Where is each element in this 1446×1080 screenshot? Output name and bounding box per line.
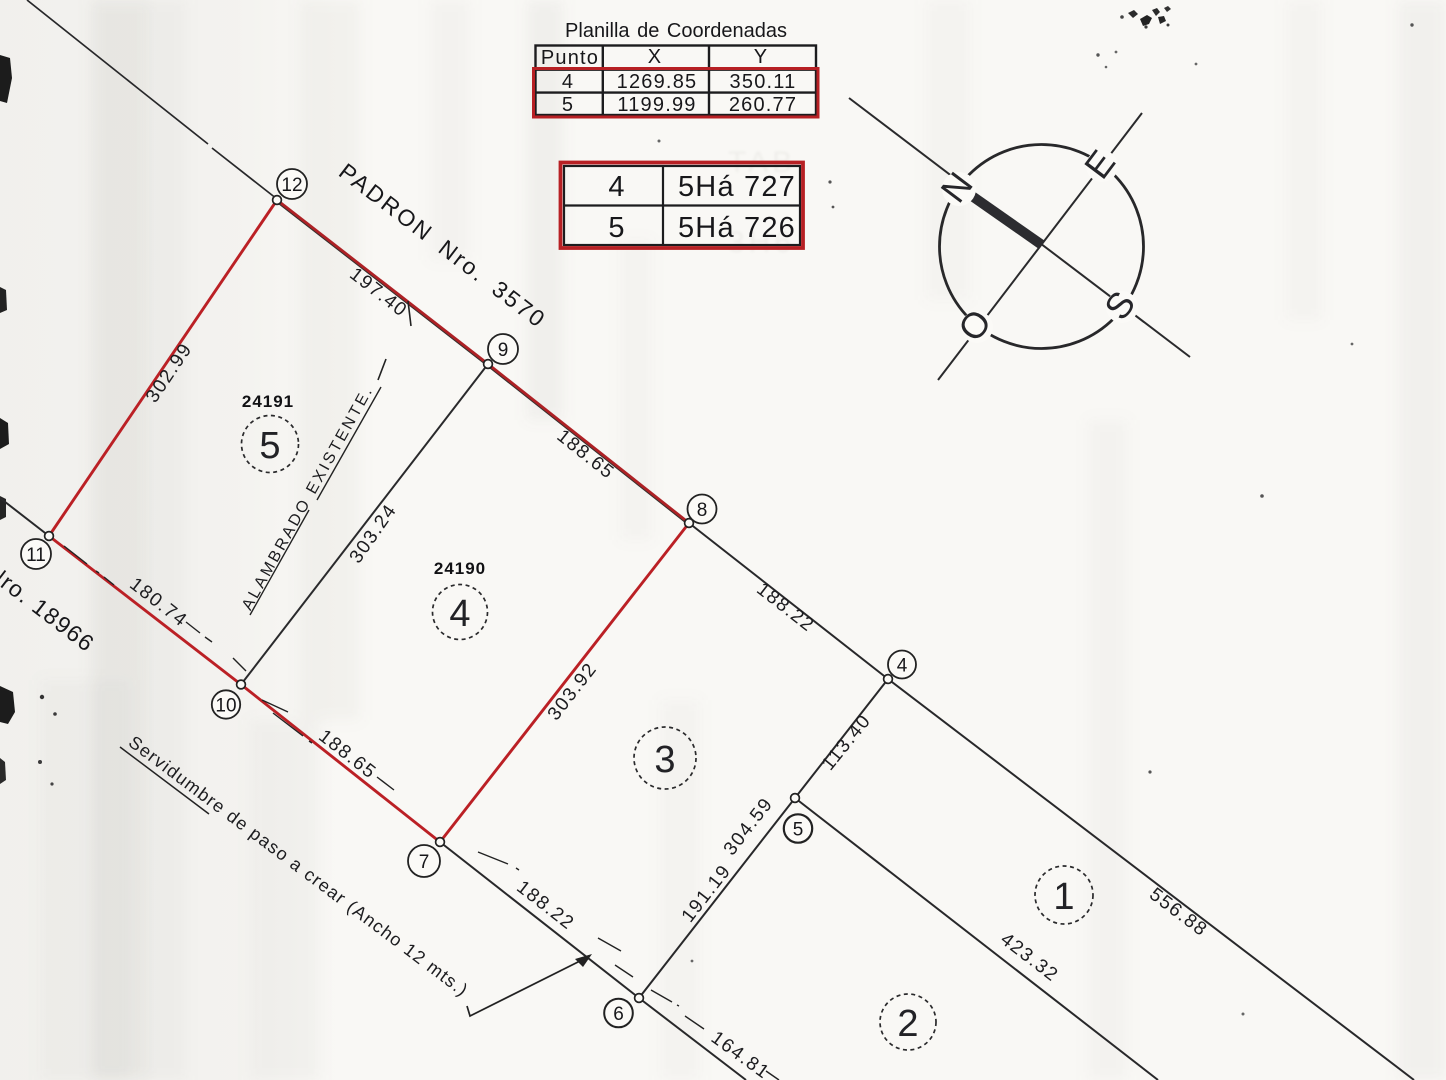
svg-text:Y: Y bbox=[754, 46, 769, 68]
svg-text:24191: 24191 bbox=[242, 392, 294, 411]
svg-text:10: 10 bbox=[215, 696, 236, 717]
svg-text:8: 8 bbox=[697, 500, 708, 521]
svg-text:5: 5 bbox=[562, 94, 574, 116]
svg-text:Planilla de Coordenadas: Planilla de Coordenadas bbox=[565, 20, 787, 42]
svg-text:6: 6 bbox=[613, 1004, 624, 1025]
svg-text:1199.99: 1199.99 bbox=[617, 94, 696, 116]
svg-text:5Há 726: 5Há 726 bbox=[678, 212, 796, 244]
svg-text:1269.85: 1269.85 bbox=[617, 71, 698, 93]
svg-text:9: 9 bbox=[498, 340, 509, 361]
svg-text:7: 7 bbox=[419, 852, 430, 873]
svg-text:5: 5 bbox=[793, 820, 804, 841]
svg-text:11: 11 bbox=[26, 545, 46, 566]
svg-text:4: 4 bbox=[897, 656, 908, 677]
svg-text:2: 2 bbox=[897, 1003, 918, 1045]
svg-text:Punto: Punto bbox=[541, 47, 599, 69]
svg-text:350.11: 350.11 bbox=[730, 71, 797, 93]
svg-text:12: 12 bbox=[281, 175, 302, 196]
svg-text:3: 3 bbox=[654, 739, 675, 781]
svg-text:X: X bbox=[648, 46, 663, 68]
svg-text:5: 5 bbox=[259, 425, 280, 467]
svg-text:1: 1 bbox=[1053, 876, 1074, 918]
svg-text:5: 5 bbox=[608, 212, 625, 244]
svg-text:4: 4 bbox=[608, 171, 625, 203]
svg-text:260.77: 260.77 bbox=[729, 94, 797, 116]
svg-text:4: 4 bbox=[562, 71, 574, 93]
svg-text:5Há 727: 5Há 727 bbox=[678, 171, 796, 203]
svg-text:24190: 24190 bbox=[434, 559, 486, 578]
svg-text:4: 4 bbox=[449, 593, 470, 635]
